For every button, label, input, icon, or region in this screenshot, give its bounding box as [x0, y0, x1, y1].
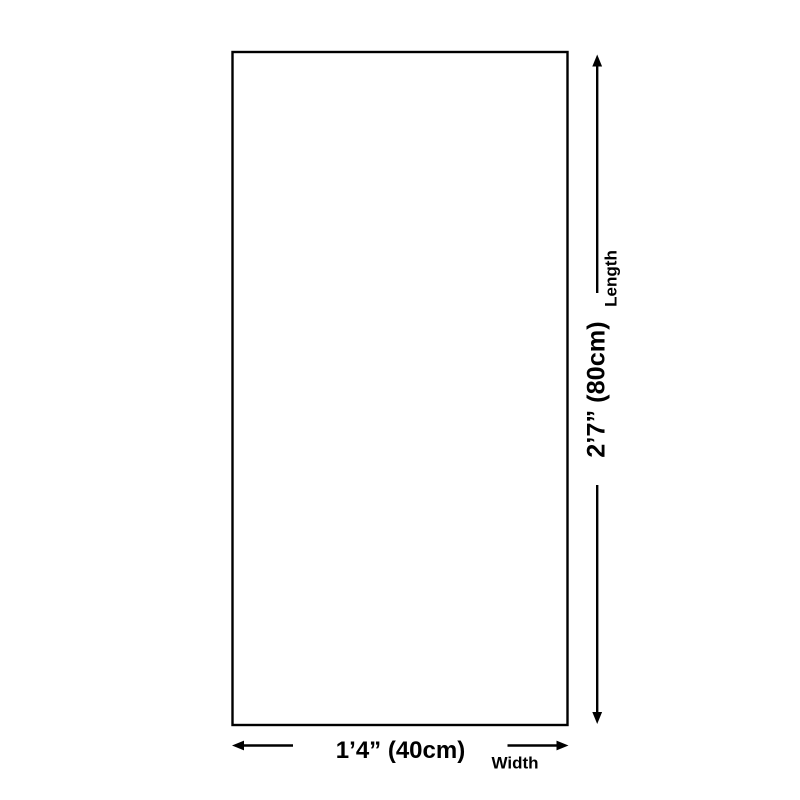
svg-text:1’4” (40cm): 1’4” (40cm) — [336, 737, 465, 764]
svg-text:2’7” (80cm): 2’7” (80cm) — [583, 321, 611, 457]
svg-text:Length: Length — [602, 250, 621, 307]
svg-text:Width: Width — [491, 754, 538, 773]
